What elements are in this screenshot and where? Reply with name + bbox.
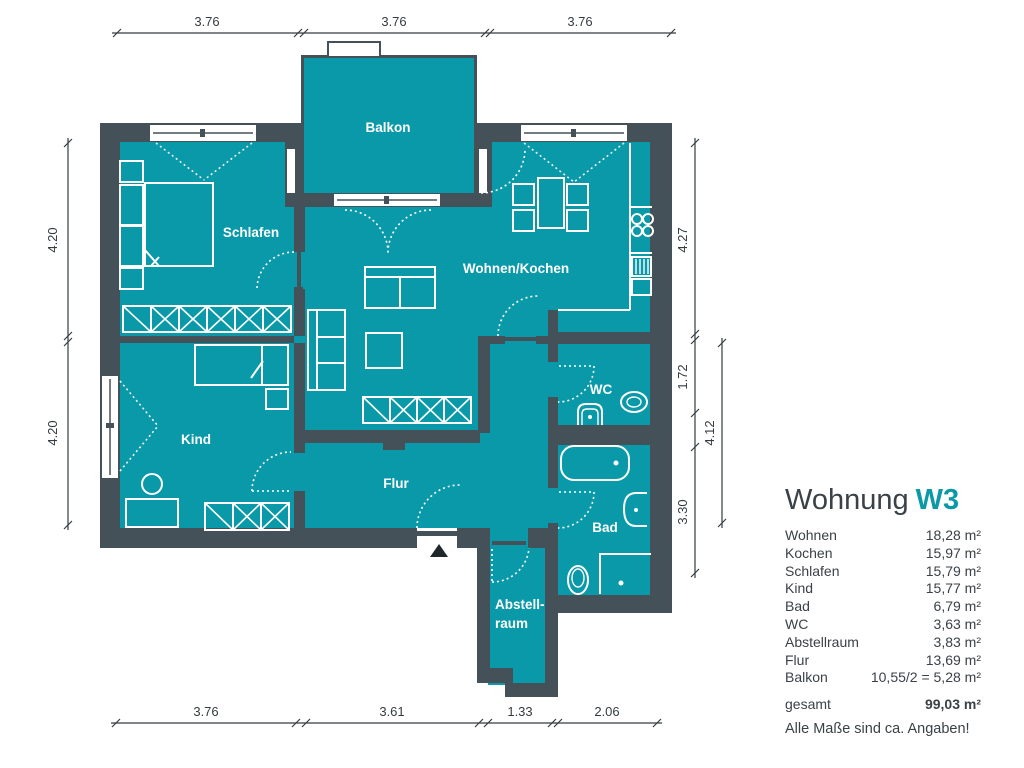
legend-row: Flur13,69 m² bbox=[785, 652, 981, 670]
dim-bottom-3: 1.33 bbox=[507, 704, 532, 719]
row-value: 15,77 m² bbox=[926, 580, 981, 598]
row-label: WC bbox=[785, 616, 808, 634]
room-label-schlafen: Schlafen bbox=[223, 225, 279, 240]
legend-row: Abstellraum3,83 m² bbox=[785, 634, 981, 652]
dim-top-1: 3.76 bbox=[194, 14, 219, 29]
dim-right-outer: 4.12 bbox=[702, 420, 717, 445]
dim-bottom-2: 3.61 bbox=[379, 704, 404, 719]
legend-note: Alle Maße sind ca. Angaben! bbox=[785, 721, 981, 737]
total-label: gesamt bbox=[785, 696, 831, 712]
row-label: Flur bbox=[785, 652, 809, 670]
row-label: Balkon bbox=[785, 669, 828, 687]
room-label-bad: Bad bbox=[592, 520, 618, 535]
legend-row: Wohnen18,28 m² bbox=[785, 527, 981, 545]
room-label-flur: Flur bbox=[383, 476, 409, 491]
dim-bottom-1: 3.76 bbox=[193, 704, 218, 719]
row-value: 18,28 m² bbox=[926, 527, 981, 545]
area-legend: WohnungW3 Wohnen18,28 m² Kochen15,97 m² … bbox=[785, 484, 981, 737]
room-label-kind: Kind bbox=[181, 432, 211, 447]
row-value: 15,97 m² bbox=[926, 545, 981, 563]
dim-top-2: 3.76 bbox=[381, 14, 406, 29]
legend-row: Schlafen15,79 m² bbox=[785, 563, 981, 581]
page-title: WohnungW3 bbox=[785, 484, 981, 517]
row-value: 10,55/2 = 5,28 m² bbox=[871, 669, 981, 687]
room-label-wohnen-kochen: Wohnen/Kochen bbox=[463, 261, 569, 276]
door-leaf-schlafen bbox=[297, 250, 301, 290]
row-label: Wohnen bbox=[785, 527, 837, 545]
legend-total-row: gesamt99,03 m² bbox=[785, 696, 981, 712]
door-leaf-wohnen bbox=[504, 337, 536, 341]
storage-area bbox=[488, 545, 546, 685]
row-value: 13,69 m² bbox=[926, 652, 981, 670]
dim-left-1: 4.20 bbox=[45, 227, 60, 252]
row-label: Abstellraum bbox=[785, 634, 859, 652]
dim-top-3: 3.76 bbox=[567, 14, 592, 29]
row-value: 15,79 m² bbox=[926, 563, 981, 581]
dim-right-2: 1.72 bbox=[675, 364, 690, 389]
row-label: Schlafen bbox=[785, 563, 839, 581]
unit-id: W3 bbox=[916, 484, 960, 516]
row-label: Kochen bbox=[785, 545, 832, 563]
legend-row: Kochen15,97 m² bbox=[785, 545, 981, 563]
total-value: 99,03 m² bbox=[925, 696, 981, 712]
dim-right-1: 4.27 bbox=[675, 227, 690, 252]
row-value: 6,79 m² bbox=[934, 598, 981, 616]
legend-row: WC3,63 m² bbox=[785, 616, 981, 634]
row-value: 3,63 m² bbox=[934, 616, 981, 634]
legend-row: Kind15,77 m² bbox=[785, 580, 981, 598]
legend-row: Balkon10,55/2 = 5,28 m² bbox=[785, 669, 981, 687]
row-label: Kind bbox=[785, 580, 813, 598]
room-label-abstellraum-1: Abstell- bbox=[495, 597, 545, 612]
room-label-balkon: Balkon bbox=[365, 120, 410, 135]
row-label: Bad bbox=[785, 598, 810, 616]
title-prefix: Wohnung bbox=[785, 484, 909, 516]
side-window-left bbox=[287, 149, 295, 193]
row-value: 3,83 m² bbox=[934, 634, 981, 652]
balcony-planter bbox=[328, 42, 380, 57]
room-areas bbox=[105, 57, 667, 685]
dim-left-2: 4.20 bbox=[45, 420, 60, 445]
door-leaf-entrance bbox=[417, 531, 458, 536]
side-window-right bbox=[479, 149, 487, 193]
dim-bottom-4: 2.06 bbox=[594, 704, 619, 719]
room-label-abstellraum-2: raum bbox=[495, 616, 528, 631]
dim-right-3: 3.30 bbox=[675, 499, 690, 524]
door-leaf-abstellraum bbox=[492, 541, 526, 545]
room-label-wc: WC bbox=[590, 382, 613, 397]
legend-row: Bad6,79 m² bbox=[785, 598, 981, 616]
